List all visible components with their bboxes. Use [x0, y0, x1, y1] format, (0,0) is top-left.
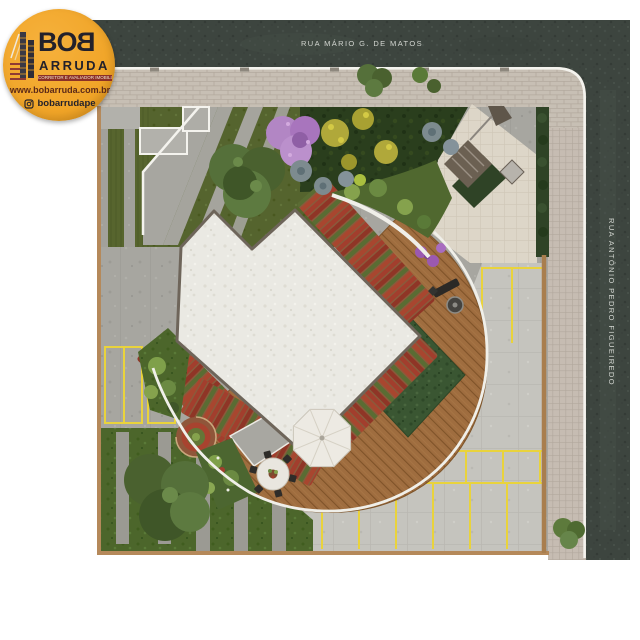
instagram-handle: bobarrudape: [37, 98, 95, 109]
logo-website: www.bobarruda.com.br: [9, 85, 111, 95]
barbecue-grill: [447, 297, 463, 313]
logo-instagram-row: bobarrudape: [19, 98, 101, 109]
realtor-logo-badge: BOB ARRUDA CORRETOR E AVALIADOR IMOBILIÁ…: [3, 9, 115, 121]
site-plan-page: RUA MÁRIO G. DE MATOS RUA ANTÔNIO PEDRO …: [0, 0, 640, 640]
logo-brand-name-2: ARRUDA: [39, 58, 110, 73]
building-icon: [10, 30, 36, 86]
asphalt-patch: [460, 37, 540, 55]
mirrored-letter: B: [77, 29, 96, 56]
logo-brand-name: BOB: [38, 29, 95, 56]
street-name-right: RUA ANTÔNIO PEDRO FIGUEIREDO: [607, 218, 616, 386]
sidewalk-right: [548, 128, 586, 560]
instagram-icon: [24, 99, 34, 109]
patio-umbrella: [293, 409, 350, 466]
logo-tagline: CORRETOR E AVALIADOR IMOBILIÁRIO: [38, 75, 112, 81]
street-name-top: RUA MÁRIO G. DE MATOS: [301, 39, 423, 48]
